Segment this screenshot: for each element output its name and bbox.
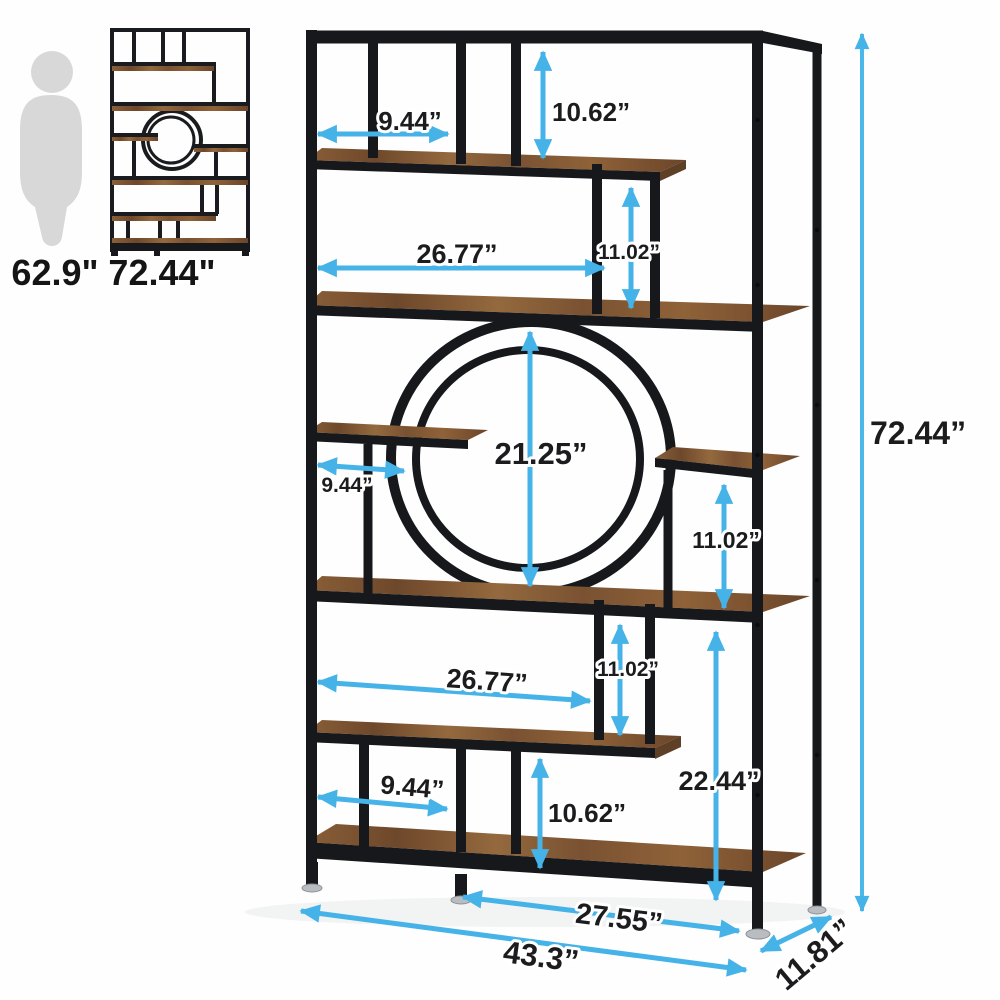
scale-reference-person: 62.9" [11, 51, 98, 293]
dim-upper-step-height-label: 11.02” [598, 241, 660, 264]
dim-lower-right-height-label: 22.44” [678, 766, 759, 796]
dim-lower-opening-width-label: 26.77” [446, 663, 529, 699]
dim-middle-shelf-width-label: 9.44” [321, 474, 372, 497]
dim-circle-opening-height-label: 21.25” [494, 436, 587, 471]
person-head-icon [31, 51, 73, 93]
dim-bottom-cubby-height-label: 10.62” [548, 798, 626, 828]
dim-top-cubby-width-label: 9.44” [378, 106, 442, 136]
top-side-rail [763, 31, 822, 54]
dim-middle-right-height-label: 11.02” [692, 527, 760, 553]
product-dimension-diagram: 62.9" 72.44" [0, 0, 1000, 1000]
thumbnail-bookshelf: 72.44" [108, 28, 250, 293]
diagram-svg: 62.9" 72.44" [0, 0, 1000, 1000]
dim-bottom-cubby-width-label: 9.44” [379, 769, 445, 804]
dim-overall-width-label: 43.3” [501, 934, 581, 979]
dim-overall-height-label: 72.44” [870, 415, 966, 451]
person-body-icon [20, 95, 82, 246]
back-foot [813, 886, 822, 908]
thumbnail-height-label: 72.44" [108, 252, 215, 293]
person-height-label: 62.9" [11, 252, 98, 293]
dim-top-cubby-height-label: 10.62” [552, 97, 630, 127]
dim-upper-opening-width-label: 26.77” [416, 239, 497, 269]
dim-lower-step-height-label: 11.02” [597, 658, 659, 681]
